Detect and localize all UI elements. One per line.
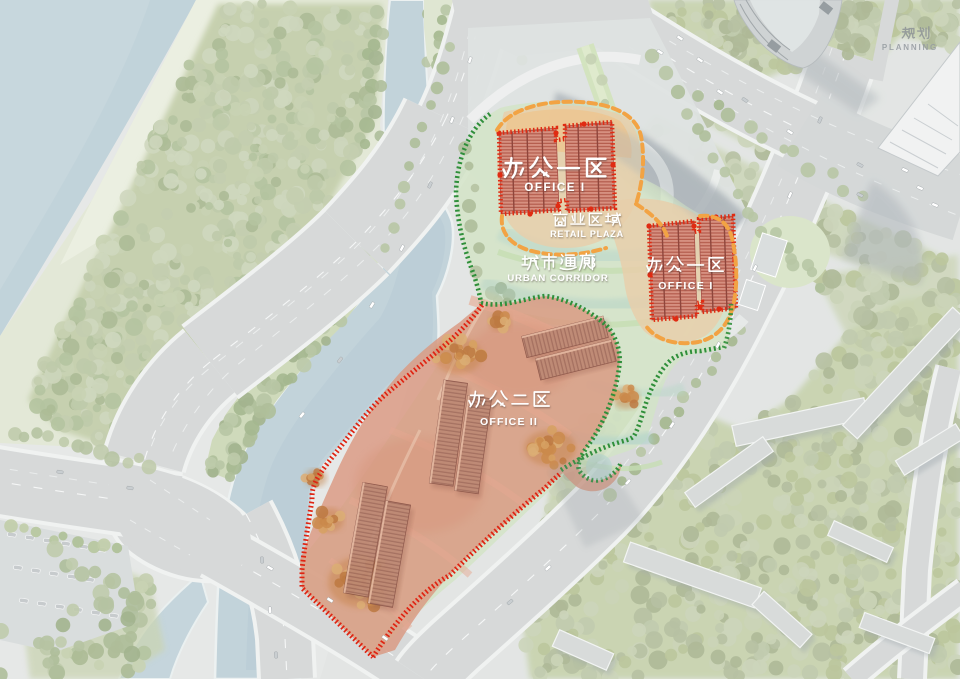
svg-text:URBAN CORRIDOR: URBAN CORRIDOR — [507, 273, 608, 284]
svg-text:OFFICE II: OFFICE II — [480, 416, 538, 428]
svg-text:PLANNING: PLANNING — [882, 43, 938, 52]
svg-text:OFFICE I: OFFICE I — [658, 280, 714, 292]
svg-text:OFFICE I: OFFICE I — [524, 182, 585, 194]
svg-text:RETAIL PLAZA: RETAIL PLAZA — [550, 229, 624, 239]
